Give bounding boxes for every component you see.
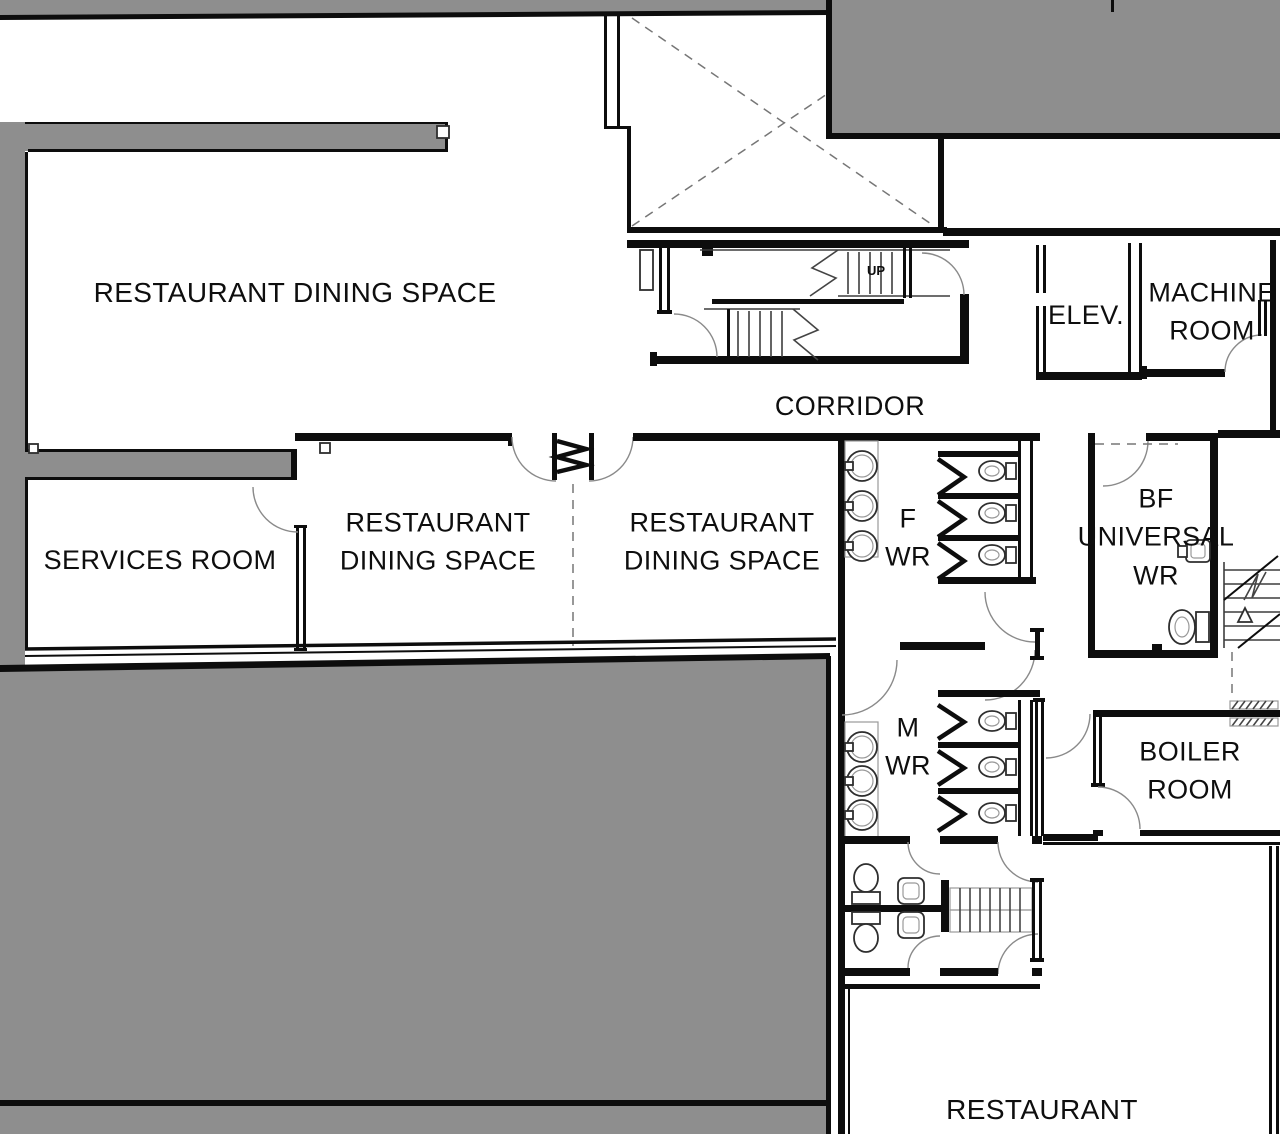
f-wr-toilets [979,461,1016,565]
label-boiler-room: BOILER ROOM [1139,733,1240,810]
m-wr-sinks [845,732,877,830]
label-dining-top: RESTAURANT DINING SPACE [94,273,497,313]
label-bf-universal-wr: BF UNIVERSAL WR [1078,480,1235,595]
label-dining-right: RESTAURANT DINING SPACE [624,504,820,581]
label-f-wr: F WR [885,500,931,577]
f-wr-sinks [845,451,877,561]
label-machine-room: MACHINE ROOM [1148,274,1275,351]
m-washroom [838,660,1042,844]
label-m-wr: M WR [885,709,931,786]
washroom-west-wall [838,433,845,1134]
central-stairwell [627,240,969,366]
floor-plan-canvas: RESTAURANT DINING SPACE CORRIDOR ELEV. M… [0,0,1280,1134]
label-corridor: CORRIDOR [775,387,925,425]
label-dining-left: RESTAURANT DINING SPACE [340,504,536,581]
label-stair-up: UP [867,262,885,280]
label-elevator: ELEV. [1048,296,1124,334]
f-washroom [845,433,1044,700]
label-restaurant: RESTAURANT [946,1090,1138,1130]
m-wr-toilets [979,711,1016,823]
staff-washrooms [838,842,1044,989]
label-services-room: SERVICES ROOM [44,541,277,579]
